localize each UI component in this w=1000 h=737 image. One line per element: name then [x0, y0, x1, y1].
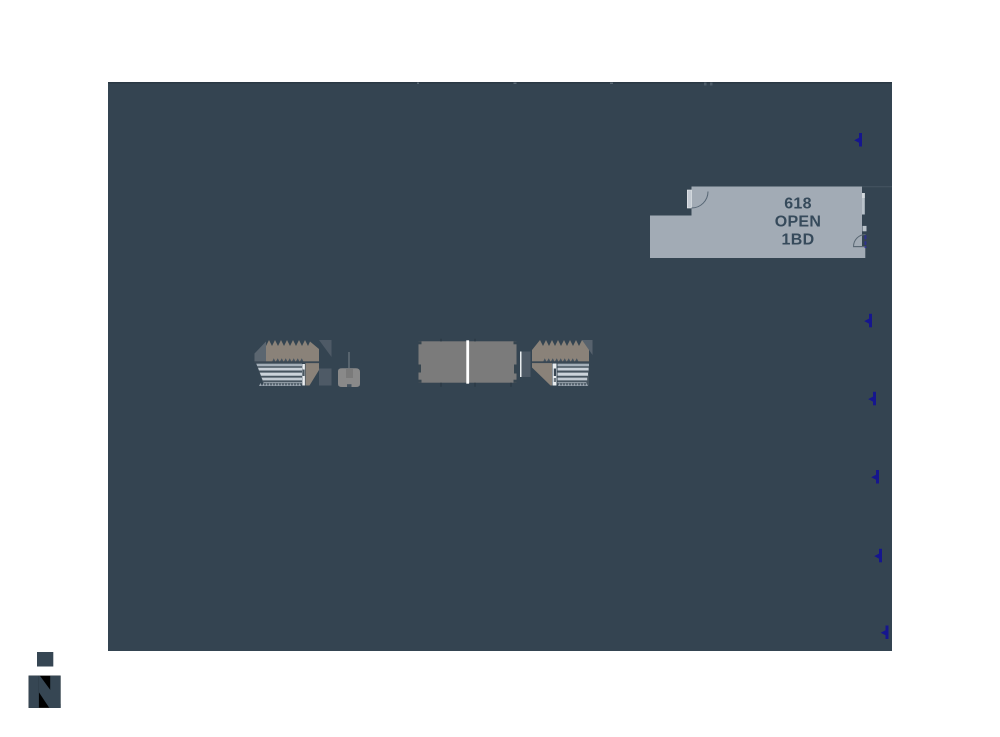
svg-text:618: 618: [784, 195, 812, 212]
svg-text:OPEN: OPEN: [775, 213, 822, 230]
svg-text:1BD: 1BD: [782, 231, 815, 248]
